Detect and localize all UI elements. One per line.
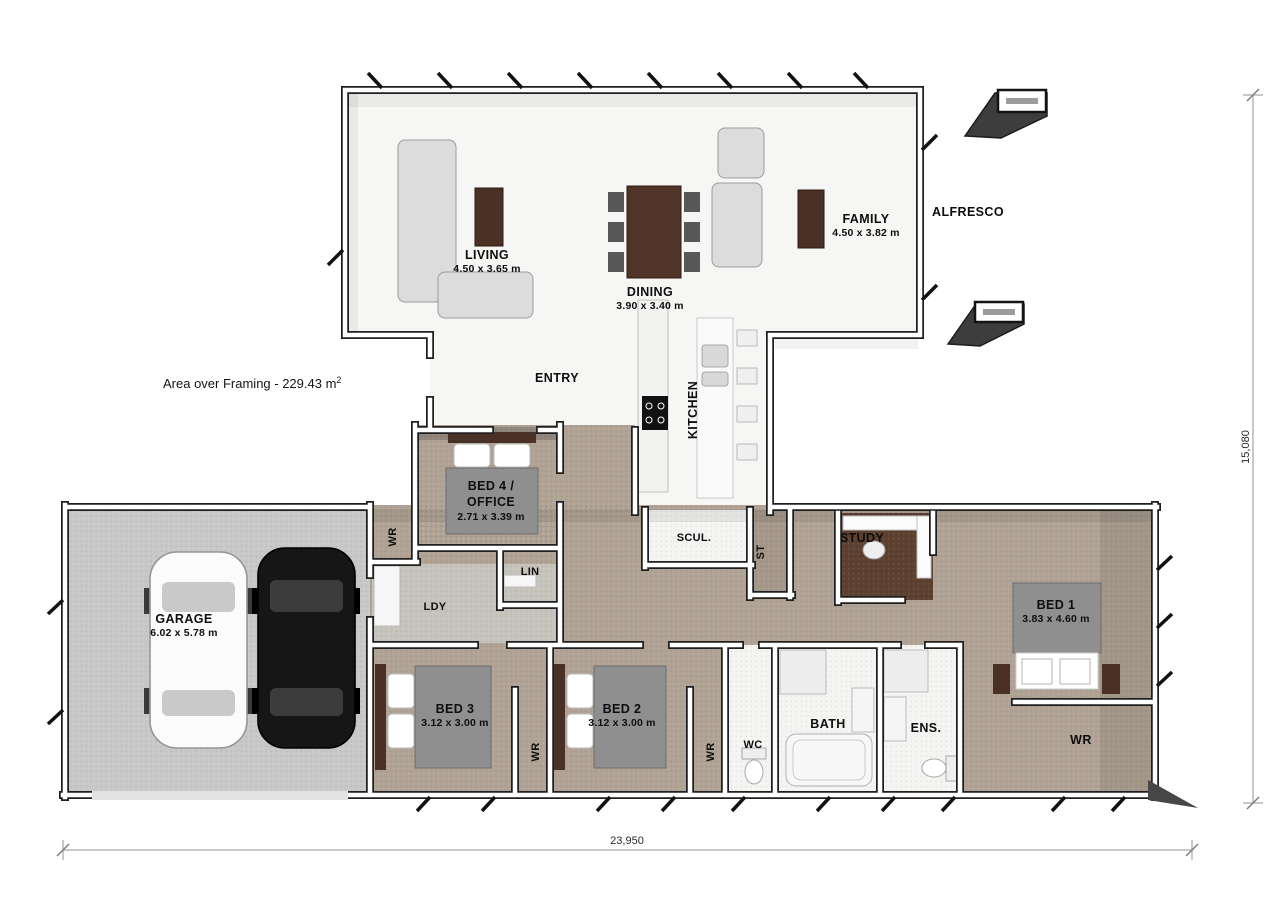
room-label-living: LIVING 4.50 x 3.65 m bbox=[453, 247, 520, 277]
floor-plan-drawing bbox=[0, 0, 1280, 905]
laundry-bench bbox=[374, 566, 400, 626]
living-coffee-table bbox=[475, 188, 503, 246]
dining-table bbox=[627, 186, 681, 278]
room-label-bed2: BED 2 3.12 x 3.00 m bbox=[588, 701, 655, 731]
room-label-dining: DINING 3.90 x 3.40 m bbox=[616, 284, 683, 314]
bed4-pillow bbox=[454, 444, 490, 467]
room-label-kitchen: KITCHEN bbox=[685, 381, 701, 439]
dimension-height-label: 15,080 bbox=[1240, 430, 1252, 464]
car-white bbox=[144, 552, 253, 748]
bathtub bbox=[786, 734, 872, 786]
garage-door bbox=[92, 791, 348, 800]
room-label-family: FAMILY 4.50 x 3.82 m bbox=[832, 211, 899, 241]
dining-chair bbox=[684, 192, 700, 212]
room-label-wr-bed2: WR bbox=[704, 743, 718, 762]
room-label-ensuite: ENS. bbox=[911, 720, 942, 736]
room-label-linen: LIN bbox=[521, 565, 540, 579]
ensuite-shower bbox=[884, 650, 928, 692]
bath-shower bbox=[780, 650, 826, 694]
room-label-bed4: BED 4 / OFFICE 2.71 x 3.39 m bbox=[457, 478, 524, 524]
kitchen-stool bbox=[737, 444, 757, 460]
room-label-scullery: SCUL. bbox=[677, 531, 712, 545]
room-label-bath: BATH bbox=[810, 716, 845, 732]
dining-chair bbox=[608, 192, 624, 212]
kitchen-sink bbox=[702, 345, 728, 367]
room-label-bed1: BED 1 3.83 x 4.60 m bbox=[1022, 597, 1089, 627]
dining-chair bbox=[684, 222, 700, 242]
kitchen-stool bbox=[737, 368, 757, 384]
bath-vanity bbox=[852, 688, 874, 732]
bed1-pillow bbox=[1060, 659, 1090, 684]
room-label-laundry: LDY bbox=[424, 600, 447, 614]
room-label-store: ST bbox=[754, 545, 768, 560]
floor-plan: LIVING 4.50 x 3.65 m DINING 3.90 x 3.40 … bbox=[0, 0, 1280, 905]
bed1-pillow bbox=[1022, 659, 1052, 684]
bed3-headboard bbox=[375, 664, 386, 770]
room-label-alfresco: ALFRESCO bbox=[932, 204, 1004, 220]
kitchen-stool bbox=[737, 330, 757, 346]
ensuite-vanity bbox=[884, 697, 906, 741]
room-label-bed3: BED 3 3.12 x 3.00 m bbox=[421, 701, 488, 731]
room-label-wr-hall: WR bbox=[386, 528, 400, 547]
dining-chair bbox=[608, 222, 624, 242]
room-label-wr-bed1: WR bbox=[1070, 732, 1092, 748]
family-sofa bbox=[712, 183, 762, 267]
bed3-pillow bbox=[388, 674, 414, 708]
room-label-wr-bed3: WR bbox=[529, 743, 543, 762]
family-tv-cabinet bbox=[798, 190, 824, 248]
room-label-wc: WC bbox=[744, 738, 763, 752]
family-sofa-2 bbox=[718, 128, 764, 178]
bed4-pillow bbox=[494, 444, 530, 467]
room-label-garage: GARAGE 6.02 x 5.78 m bbox=[150, 611, 217, 641]
dining-chair bbox=[608, 252, 624, 272]
study-desk-return bbox=[917, 516, 931, 578]
dining-chair bbox=[684, 252, 700, 272]
car-black bbox=[252, 548, 360, 748]
room-label-entry: ENTRY bbox=[535, 370, 579, 386]
bed3-pillow bbox=[388, 714, 414, 748]
dimension-width-label: 23,950 bbox=[610, 835, 644, 847]
bed1-nightstand bbox=[1102, 664, 1120, 694]
area-note: Area over Framing - 229.43 m2 bbox=[163, 375, 341, 391]
bed1-nightstand bbox=[993, 664, 1010, 694]
kitchen-cooktop bbox=[642, 396, 668, 430]
kitchen-stool bbox=[737, 406, 757, 422]
kitchen-sink-2 bbox=[702, 372, 728, 386]
room-label-study: STUDY bbox=[840, 530, 884, 546]
bed2-headboard bbox=[554, 664, 565, 770]
ensuite-toilet bbox=[922, 759, 946, 777]
wc-toilet bbox=[745, 760, 763, 784]
corner-shadow bbox=[1148, 780, 1198, 808]
living-sofa bbox=[438, 272, 533, 318]
